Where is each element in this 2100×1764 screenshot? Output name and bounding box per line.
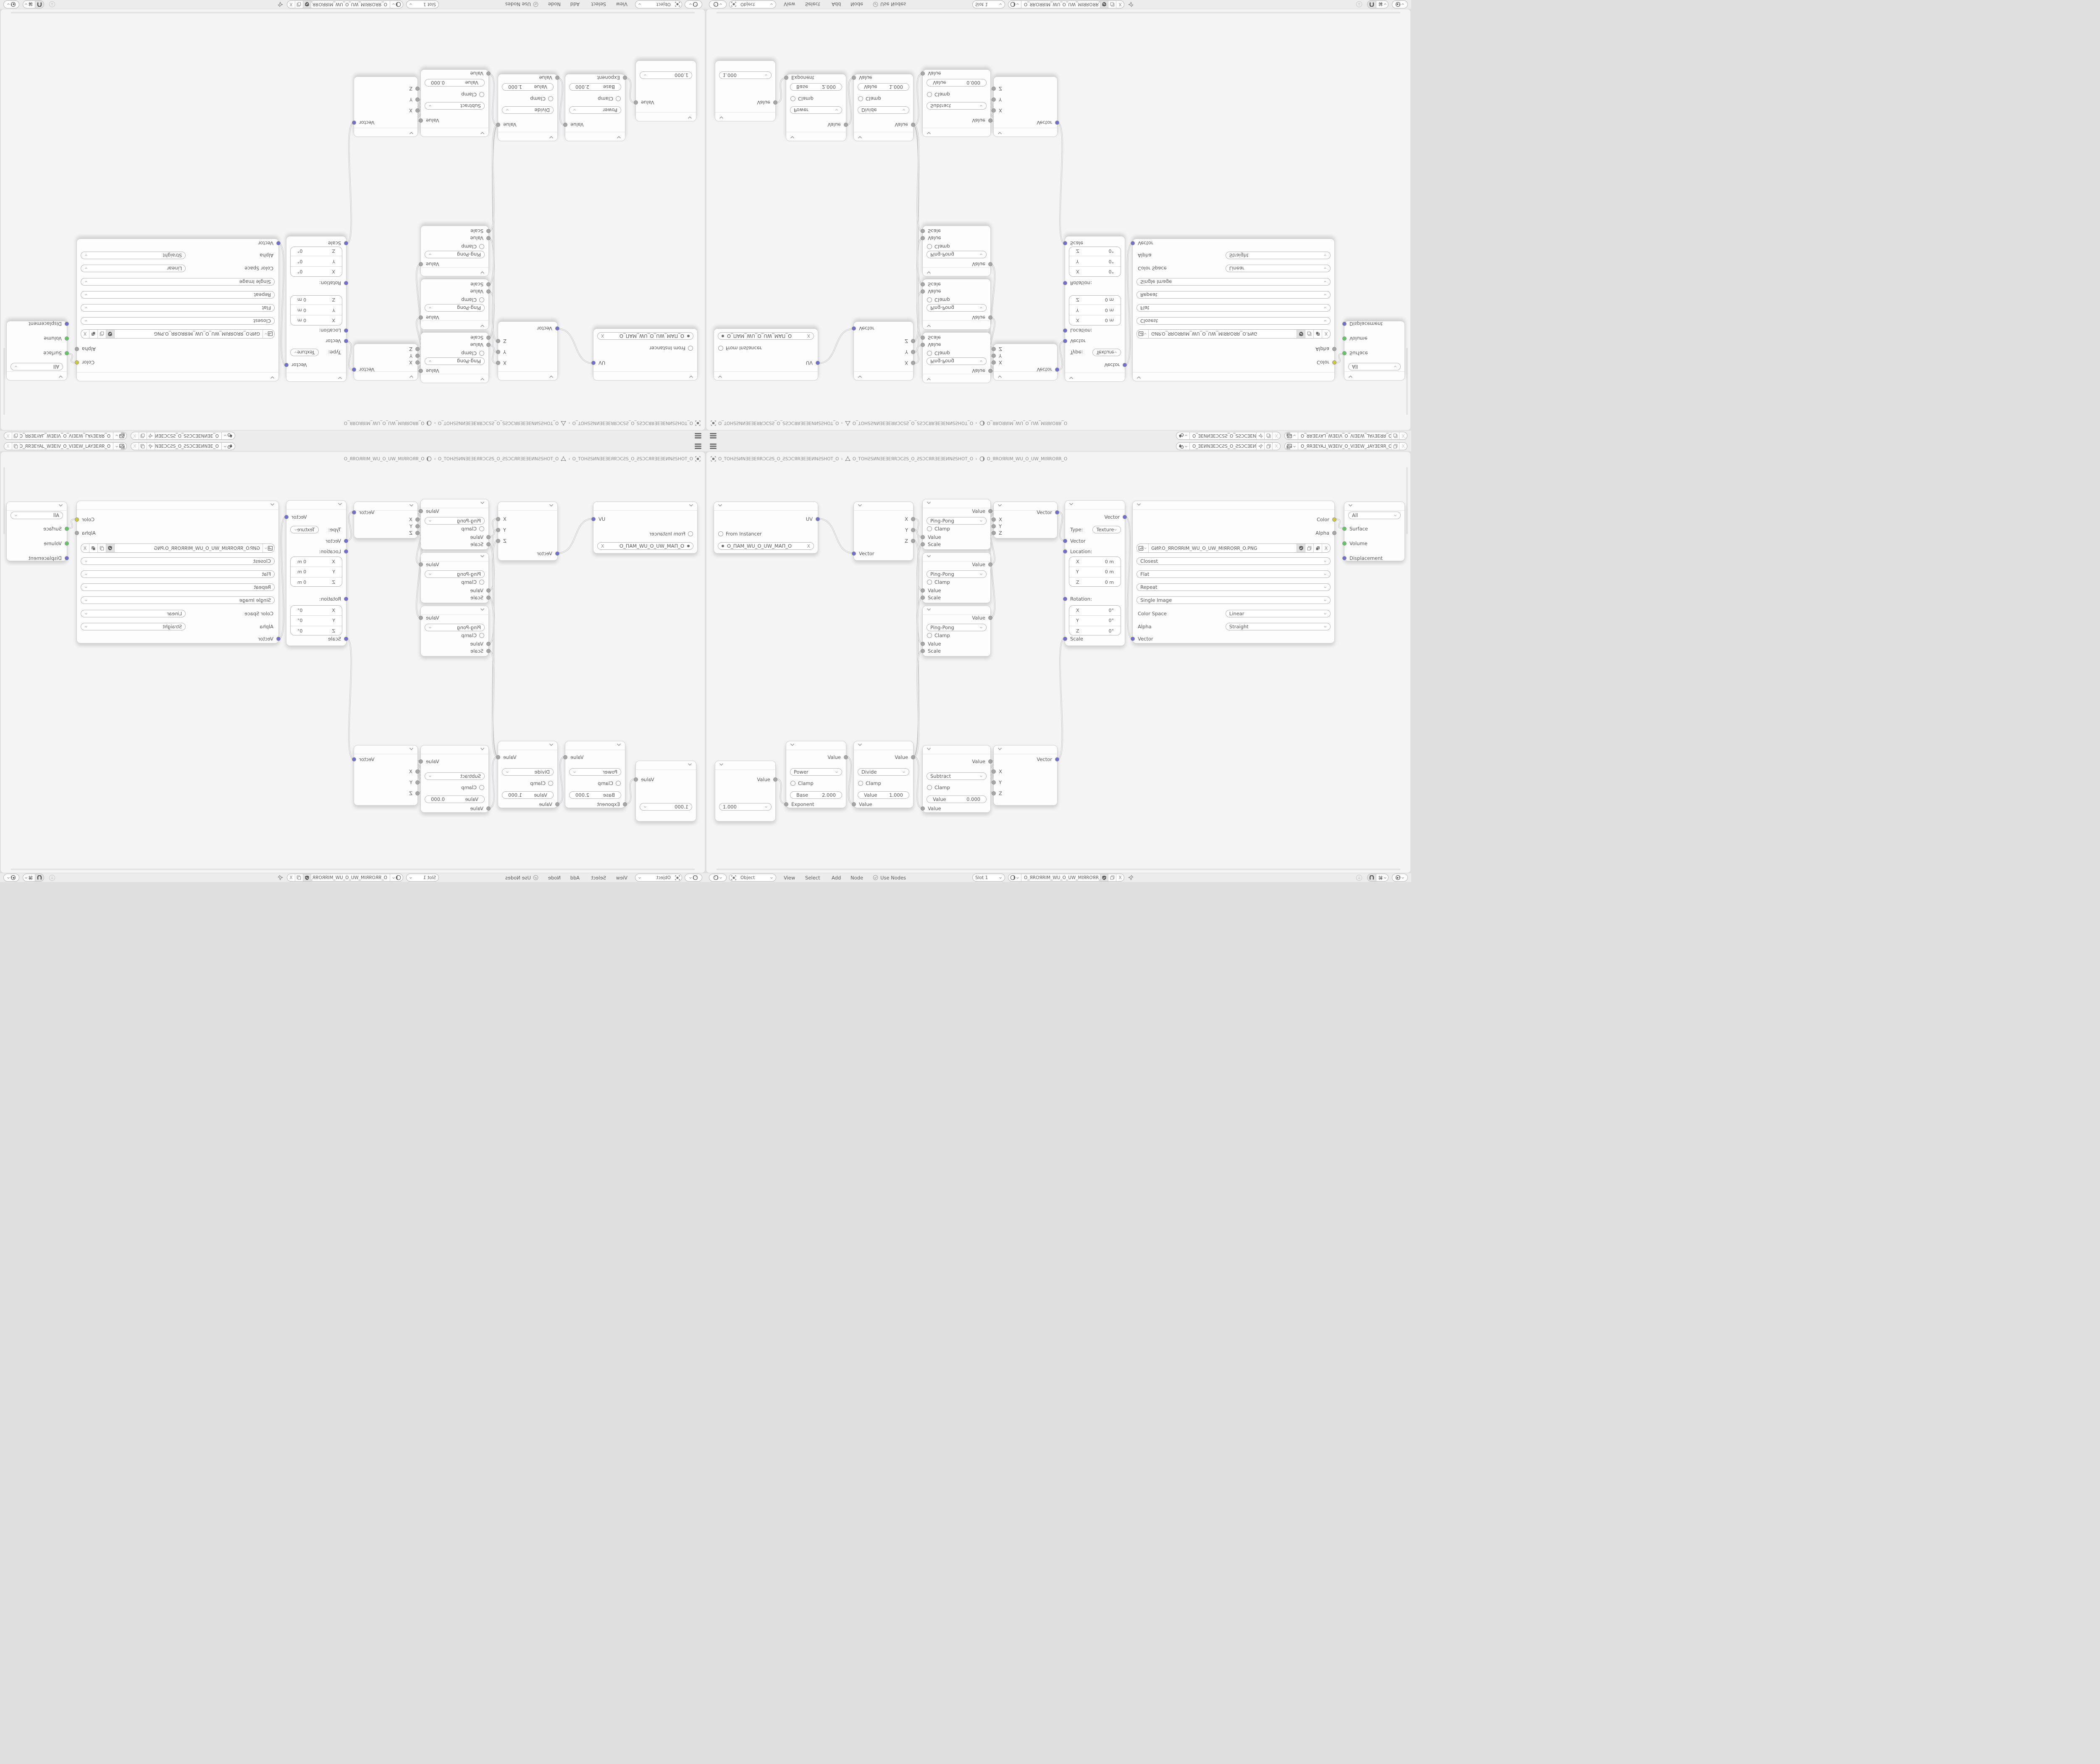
- math-pingpong-node-3[interactable]: Value Ping-PongClamp Value Scale: [420, 226, 489, 276]
- node-header[interactable]: [923, 745, 990, 754]
- menu-node[interactable]: Node: [548, 0, 561, 9]
- axis-value-field[interactable]: Y0°: [291, 256, 342, 266]
- collapse-chevron-icon[interactable]: [549, 136, 554, 139]
- dropdown[interactable]: Ping-Pong: [927, 251, 987, 258]
- image-datablock-selector[interactable]: GИP.O_ЯROЯRIM_WU_O_UW_MIЯROЯR_O.PNG X: [81, 543, 275, 553]
- snapping-controls[interactable]: [23, 0, 44, 8]
- input-socket-x[interactable]: [415, 769, 420, 774]
- output-socket-uv[interactable]: [816, 361, 820, 365]
- pin-icon[interactable]: [278, 873, 283, 882]
- menu-add[interactable]: Add: [570, 0, 580, 9]
- menu-view[interactable]: View: [616, 873, 627, 882]
- dropdown[interactable]: Ping-Pong: [927, 304, 987, 312]
- mapping-node[interactable]: Vector Type: Texture Vector Location: X0…: [1065, 236, 1125, 382]
- node-header[interactable]: [1133, 501, 1334, 510]
- input-socket-x[interactable]: [992, 517, 996, 522]
- menu-hamburger-icon[interactable]: [710, 433, 717, 438]
- input-socket-scale[interactable]: [344, 241, 348, 245]
- output-socket-value[interactable]: [988, 509, 992, 513]
- shader-type-dropdown[interactable]: Object: [729, 0, 776, 8]
- math-pingpong-node-2[interactable]: Value Ping-PongClamp Value Scale: [922, 279, 991, 330]
- input-socket-value[interactable]: [486, 535, 491, 539]
- axis-value-field[interactable]: Z0 m: [1069, 577, 1121, 587]
- output-socket-x[interactable]: [496, 517, 500, 521]
- view-layer-selector[interactable]: O_ЯRƎEYA⅃_WƎEIV_O_VIƎEW_⅃AYƎEЯR_O X: [1284, 432, 1407, 440]
- math-pingpong-node-3[interactable]: Value Ping-PongClamp Value Scale: [420, 606, 489, 656]
- collapse-chevron-icon[interactable]: [997, 504, 1002, 507]
- proportional-edit-dropdown[interactable]: [3, 874, 19, 882]
- output-socket-y[interactable]: [911, 528, 915, 532]
- input-socket-z[interactable]: [992, 347, 996, 351]
- input-socket-value[interactable]: [486, 806, 491, 811]
- output-socket-value[interactable]: [988, 262, 992, 266]
- new-copy-icon[interactable]: [1391, 432, 1399, 439]
- math-pingpong-node-1[interactable]: Value Ping-PongClamp Value Scale: [420, 332, 489, 383]
- node-header[interactable]: [286, 373, 346, 381]
- snapping-controls[interactable]: [1367, 0, 1389, 8]
- output-socket-x[interactable]: [911, 517, 915, 521]
- output-socket-vector[interactable]: [284, 363, 289, 367]
- snapping-controls[interactable]: [1367, 874, 1389, 882]
- math-subtract-node[interactable]: Value SubtractClampValue0.000 Value: [420, 745, 489, 813]
- material-selector[interactable]: O_ЯROЯRIM_WU_O_UW_MIЯROЯR_O X: [287, 0, 403, 8]
- menu-select[interactable]: Select: [805, 0, 820, 9]
- input-socket-value[interactable]: [921, 806, 925, 811]
- node-header[interactable]: [786, 132, 846, 141]
- collapse-chevron-icon[interactable]: [927, 747, 931, 751]
- input-socket-value[interactable]: [921, 343, 925, 347]
- output-socket-vector[interactable]: [1055, 121, 1059, 125]
- new-copy-icon[interactable]: [1264, 432, 1272, 439]
- dropdown[interactable]: Single Image: [81, 278, 275, 286]
- collapse-chevron-icon[interactable]: [719, 116, 724, 119]
- dropdown[interactable]: Flat: [1137, 304, 1331, 312]
- new-copy-icon[interactable]: [1264, 443, 1272, 450]
- menu-hamburger-icon[interactable]: [695, 433, 701, 438]
- menu-view[interactable]: View: [784, 0, 795, 9]
- dropdown[interactable]: Subtract: [927, 772, 987, 780]
- scene-selector[interactable]: O_ƎEИNƎEƆCƧS_O_ƧSƆCƎEИNƎE_O X: [131, 432, 235, 440]
- value-field[interactable]: Base2.000: [790, 791, 842, 799]
- value-field[interactable]: Value1.000: [858, 791, 909, 799]
- new-copy-icon[interactable]: [12, 432, 20, 439]
- separate-xyz-node[interactable]: X Y Z Vector: [853, 321, 913, 381]
- combine-xyz-node-bottom[interactable]: Vector X Y Z: [354, 76, 418, 137]
- axis-value-field[interactable]: X0 m: [291, 557, 342, 567]
- output-socket-value[interactable]: [988, 315, 992, 320]
- axis-value-field[interactable]: X0°: [291, 606, 342, 615]
- output-socket-z[interactable]: [911, 339, 915, 343]
- input-socket-displacement[interactable]: [65, 556, 69, 560]
- combine-xyz-node-top[interactable]: Vector X Y Z: [354, 344, 418, 381]
- checkbox[interactable]: Clamp: [927, 350, 950, 356]
- axis-value-field[interactable]: Y0 m: [1069, 567, 1121, 577]
- input-socket-scale[interactable]: [921, 336, 925, 340]
- input-socket-y[interactable]: [415, 354, 420, 358]
- node-header[interactable]: [714, 371, 818, 380]
- axis-value-field[interactable]: Y0°: [1069, 615, 1121, 625]
- collapse-chevron-icon[interactable]: [997, 747, 1002, 751]
- fake-user-shield-icon[interactable]: [303, 1, 311, 8]
- separate-xyz-node[interactable]: X Y Z Vector: [853, 501, 913, 561]
- checkbox[interactable]: Clamp: [858, 780, 881, 786]
- dropdown[interactable]: Closest: [81, 557, 275, 565]
- input-socket-z[interactable]: [992, 791, 996, 795]
- separate-xyz-node[interactable]: X Y Z Vector: [498, 321, 558, 381]
- copy-icon[interactable]: [1108, 874, 1116, 881]
- checkbox[interactable]: From Instancer: [649, 531, 693, 537]
- checkbox[interactable]: Clamp: [927, 633, 950, 638]
- input-socket-location[interactable]: [344, 328, 348, 333]
- node-header[interactable]: [854, 741, 913, 750]
- value-node[interactable]: Value 1.000: [635, 761, 696, 822]
- output-socket-uv[interactable]: [591, 361, 596, 365]
- input-socket-scale[interactable]: [1063, 241, 1067, 245]
- input-socket-surface[interactable]: [65, 351, 69, 355]
- node-header[interactable]: [7, 371, 67, 380]
- input-socket-scale[interactable]: [921, 596, 925, 600]
- fake-user-shield-icon[interactable]: [106, 544, 115, 552]
- axis-value-field[interactable]: Y0 m: [1069, 305, 1121, 315]
- input-socket-y[interactable]: [415, 97, 420, 102]
- xyz-value-box[interactable]: X0 mY0 mZ0 m: [1069, 295, 1121, 325]
- input-socket-vector[interactable]: [852, 551, 856, 556]
- unlink-x-icon[interactable]: X: [131, 443, 139, 450]
- output-socket-vector[interactable]: [352, 367, 356, 372]
- node-header[interactable]: [1065, 373, 1125, 381]
- pack-icon[interactable]: [1313, 330, 1322, 338]
- math-power-node[interactable]: Value PowerClampBase2.000 Exponent: [565, 74, 625, 141]
- output-socket-value[interactable]: [419, 118, 423, 123]
- math-divide-node[interactable]: Value DivideClampValue1.000 Value: [498, 741, 558, 808]
- output-socket-value[interactable]: [419, 616, 423, 620]
- material-output-node[interactable]: All Surface Volume Displacement: [6, 321, 67, 381]
- node-header[interactable]: [593, 371, 697, 380]
- separate-xyz-node[interactable]: X Y Z Vector: [498, 501, 558, 561]
- slot-dropdown[interactable]: Slot 1: [972, 874, 1005, 882]
- output-socket-value[interactable]: [563, 755, 567, 759]
- output-socket-value[interactable]: [911, 123, 915, 127]
- uv-map-node[interactable]: UV From InstancerO_ПAM_WU_O_UW_MAП_OX: [593, 501, 698, 554]
- checkbox[interactable]: From Instancer: [649, 345, 693, 351]
- xyz-value-box[interactable]: X0°Y0°Z0°: [1069, 605, 1121, 635]
- collapse-chevron-icon[interactable]: [927, 378, 931, 381]
- input-socket-scale[interactable]: [921, 229, 925, 233]
- input-socket-z[interactable]: [992, 87, 996, 91]
- pin-icon[interactable]: [1256, 443, 1264, 450]
- auto-offset-icon[interactable]: [49, 873, 55, 882]
- value-field[interactable]: Value1.000: [502, 791, 554, 799]
- axis-value-field[interactable]: X0 m: [1069, 315, 1121, 325]
- axis-value-field[interactable]: Y0°: [1069, 256, 1121, 266]
- scene-selector[interactable]: O_ƎEИNƎEƆCƧS_O_ƧSƆCƎEИNƎE_O X: [1176, 442, 1281, 450]
- math-subtract-node[interactable]: Value SubtractClampValue0.000 Value: [420, 69, 489, 137]
- menu-view[interactable]: View: [616, 0, 627, 9]
- unlink-x-icon[interactable]: X: [1322, 544, 1330, 552]
- dropdown[interactable]: Power: [569, 106, 621, 114]
- collapse-chevron-icon[interactable]: [1348, 504, 1353, 507]
- slot-dropdown[interactable]: Slot 1: [406, 0, 439, 8]
- output-socket-uv[interactable]: [591, 517, 596, 521]
- value-field[interactable]: Value1.000: [502, 83, 554, 91]
- menu-view[interactable]: View: [784, 873, 795, 882]
- output-socket-value[interactable]: [419, 509, 423, 513]
- unlink-x-icon[interactable]: X: [1322, 330, 1330, 338]
- copy-icon[interactable]: [295, 874, 303, 881]
- output-socket-z[interactable]: [496, 539, 500, 543]
- use-nodes-checkbox[interactable]: Use Nodes: [873, 873, 906, 882]
- copy-icon[interactable]: [1305, 330, 1313, 338]
- collapse-chevron-icon[interactable]: [927, 501, 931, 504]
- input-socket-volume[interactable]: [1342, 541, 1347, 546]
- view-layer-selector[interactable]: O_ЯRƎEYA⅃_WƎEIV_O_VIƎEW_⅃AYƎEЯR_O X: [4, 432, 127, 440]
- input-socket-scale[interactable]: [486, 336, 491, 340]
- dropdown[interactable]: Straight: [81, 252, 186, 259]
- axis-value-field[interactable]: X0 m: [291, 315, 342, 325]
- output-socket-alpha[interactable]: [75, 347, 79, 351]
- collapse-chevron-icon[interactable]: [1069, 502, 1074, 506]
- checkbox[interactable]: Clamp: [927, 244, 950, 249]
- node-header[interactable]: [593, 502, 697, 511]
- output-socket-alpha[interactable]: [1332, 531, 1336, 535]
- collapse-chevron-icon[interactable]: [927, 271, 931, 274]
- dropdown[interactable]: Repeat: [81, 291, 275, 299]
- output-socket-value[interactable]: [563, 123, 567, 127]
- copy-icon[interactable]: [1108, 1, 1116, 8]
- input-socket-rotation[interactable]: [344, 597, 348, 601]
- input-socket-vector[interactable]: [276, 241, 281, 245]
- view-layer-name[interactable]: O_ЯRƎEYA⅃_WƎEIV_O_VIƎEW_⅃AYƎEЯR_O: [1298, 444, 1391, 449]
- combine-xyz-node-top[interactable]: Vector X Y Z: [993, 501, 1058, 538]
- output-socket-value[interactable]: [634, 777, 638, 782]
- menu-hamburger-icon[interactable]: [710, 444, 717, 449]
- value-field[interactable]: Value0.000: [425, 795, 485, 803]
- dropdown[interactable]: Linear: [1226, 265, 1331, 272]
- axis-value-field[interactable]: Y0°: [291, 615, 342, 625]
- remove-x-icon[interactable]: X: [4, 432, 12, 439]
- input-socket-y[interactable]: [992, 354, 996, 358]
- input-socket-location[interactable]: [1063, 328, 1067, 333]
- input-socket-vector[interactable]: [555, 326, 559, 331]
- axis-value-field[interactable]: Z0°: [291, 626, 342, 635]
- node-header[interactable]: [498, 371, 557, 380]
- collapse-chevron-icon[interactable]: [270, 376, 275, 379]
- xyz-value-box[interactable]: X0 mY0 mZ0 m: [290, 556, 342, 587]
- node-header[interactable]: [498, 132, 557, 141]
- input-socket-value[interactable]: [921, 289, 925, 294]
- collapse-chevron-icon[interactable]: [688, 763, 692, 766]
- node-header[interactable]: [636, 761, 696, 770]
- axis-value-field[interactable]: Y0 m: [291, 305, 342, 315]
- unlink-x-icon[interactable]: X: [131, 432, 139, 439]
- input-socket-displacement[interactable]: [65, 322, 69, 326]
- unlink-x-icon[interactable]: X: [81, 544, 89, 552]
- combine-xyz-node-bottom[interactable]: Vector X Y Z: [993, 745, 1058, 806]
- checkbox[interactable]: Clamp: [790, 96, 814, 102]
- checkbox[interactable]: Clamp: [461, 244, 484, 249]
- node-header[interactable]: [1133, 372, 1334, 381]
- input-socket-scale[interactable]: [921, 649, 925, 653]
- value-field[interactable]: Value0.000: [927, 795, 987, 803]
- uv-map-node[interactable]: UV From InstancerO_ПAM_WU_O_UW_MAП_OX: [593, 328, 698, 381]
- fake-user-shield-icon[interactable]: [303, 874, 311, 881]
- input-socket-surface[interactable]: [1342, 527, 1347, 531]
- dropdown[interactable]: Texture: [1092, 349, 1121, 356]
- uv-map-selector[interactable]: O_ПAM_WU_O_UW_MAП_OX: [718, 542, 814, 550]
- node-header[interactable]: [498, 741, 557, 750]
- dropdown[interactable]: Power: [790, 768, 842, 776]
- node-header[interactable]: [923, 320, 990, 329]
- dropdown[interactable]: All: [1348, 512, 1401, 519]
- input-socket-y[interactable]: [992, 97, 996, 102]
- input-socket-z[interactable]: [415, 347, 420, 351]
- collapse-chevron-icon[interactable]: [617, 743, 621, 746]
- collapse-chevron-icon[interactable]: [1069, 376, 1074, 380]
- shader-type-dropdown[interactable]: Object: [635, 0, 682, 8]
- dropdown[interactable]: Subtract: [425, 102, 485, 110]
- math-divide-node[interactable]: Value DivideClampValue1.000 Value: [853, 74, 913, 141]
- output-socket-vector[interactable]: [1055, 510, 1059, 514]
- view-layer-name[interactable]: O_ЯRƎEYA⅃_WƎEIV_O_VIƎEW_⅃AYƎEЯR_O: [20, 444, 113, 449]
- output-socket-y[interactable]: [496, 350, 500, 354]
- scene-selector[interactable]: O_ƎEИNƎEƆCƧS_O_ƧSƆCƎEИNƎE_O X: [131, 442, 235, 450]
- output-socket-value[interactable]: [496, 123, 500, 127]
- pack-icon[interactable]: [1313, 544, 1322, 552]
- collapse-chevron-icon[interactable]: [409, 504, 414, 507]
- output-socket-value[interactable]: [988, 616, 992, 620]
- dropdown[interactable]: Closest: [1137, 317, 1331, 325]
- input-socket-rotation[interactable]: [344, 281, 348, 285]
- value-field[interactable]: Base2.000: [569, 791, 621, 799]
- input-socket-exponent[interactable]: [623, 76, 627, 80]
- output-socket-value[interactable]: [773, 100, 777, 105]
- input-socket-value[interactable]: [921, 236, 925, 240]
- material-selector[interactable]: O_ЯROЯRIM_WU_O_UW_MIЯROЯR_O X: [287, 874, 403, 882]
- dropdown[interactable]: Divide: [858, 106, 909, 114]
- dropdown[interactable]: Straight: [81, 623, 186, 630]
- collapse-chevron-icon[interactable]: [719, 763, 724, 766]
- value-field[interactable]: Value0.000: [927, 79, 987, 87]
- dropdown[interactable]: Ping-Pong: [425, 251, 485, 258]
- uv-map-selector[interactable]: O_ПAM_WU_O_UW_MAП_OX: [597, 542, 693, 550]
- dropdown[interactable]: Flat: [81, 304, 275, 312]
- output-socket-color[interactable]: [1332, 360, 1336, 365]
- dropdown[interactable]: Subtract: [425, 772, 485, 780]
- mapping-node[interactable]: Vector Type: Texture Vector Location: X0…: [1065, 500, 1125, 646]
- input-socket-value[interactable]: [921, 535, 925, 539]
- dropdown[interactable]: Linear: [81, 265, 186, 272]
- output-socket-uv[interactable]: [816, 517, 820, 521]
- combine-xyz-node-bottom[interactable]: Vector X Y Z: [993, 76, 1058, 137]
- fake-user-shield-icon[interactable]: [1297, 330, 1305, 338]
- xyz-value-box[interactable]: X0 mY0 mZ0 m: [290, 295, 342, 325]
- collapse-chevron-icon[interactable]: [480, 747, 485, 751]
- collapse-chevron-icon[interactable]: [480, 131, 485, 135]
- math-subtract-node[interactable]: Value SubtractClampValue0.000 Value: [922, 745, 991, 813]
- collapse-chevron-icon[interactable]: [790, 136, 795, 139]
- copy-icon[interactable]: [98, 330, 106, 338]
- output-socket-value[interactable]: [773, 777, 777, 782]
- axis-value-field[interactable]: X0°: [291, 267, 342, 276]
- dropdown[interactable]: Power: [569, 768, 621, 776]
- collapse-chevron-icon[interactable]: [927, 131, 931, 135]
- collapse-chevron-icon[interactable]: [480, 324, 485, 328]
- dropdown[interactable]: Divide: [502, 106, 554, 114]
- output-socket-value[interactable]: [988, 118, 992, 123]
- node-header[interactable]: [77, 372, 278, 381]
- pin-icon[interactable]: [1128, 873, 1134, 882]
- input-socket-exponent[interactable]: [623, 802, 627, 806]
- node-header[interactable]: [923, 128, 990, 136]
- collapse-chevron-icon[interactable]: [790, 743, 795, 746]
- value-node[interactable]: Value 1.000: [715, 60, 776, 121]
- value-node[interactable]: Value 1.000: [635, 60, 696, 121]
- uv-map-selector[interactable]: O_ПAM_WU_O_UW_MAП_OX: [597, 332, 693, 340]
- axis-value-field[interactable]: Z0°: [1069, 626, 1121, 635]
- input-socket-x[interactable]: [415, 108, 420, 113]
- pin-icon[interactable]: [1256, 432, 1264, 439]
- input-socket-vector[interactable]: [1063, 339, 1067, 343]
- math-pingpong-node-3[interactable]: Value Ping-PongClamp Value Scale: [922, 606, 991, 656]
- dropdown[interactable]: Ping-Pong: [425, 624, 485, 631]
- menu-node[interactable]: Node: [548, 873, 561, 882]
- collapse-chevron-icon[interactable]: [549, 504, 554, 507]
- dropdown[interactable]: Ping-Pong: [425, 304, 485, 312]
- node-header[interactable]: [421, 267, 488, 276]
- input-socket-value[interactable]: [921, 71, 925, 76]
- collapse-chevron-icon[interactable]: [689, 504, 693, 507]
- output-socket-vector[interactable]: [352, 121, 356, 125]
- input-socket-value[interactable]: [921, 588, 925, 593]
- input-socket-value[interactable]: [555, 802, 559, 806]
- output-socket-alpha[interactable]: [1332, 347, 1336, 351]
- input-socket-z[interactable]: [415, 531, 420, 535]
- dropdown[interactable]: Straight: [1226, 623, 1331, 630]
- collapse-chevron-icon[interactable]: [480, 608, 485, 611]
- output-socket-value[interactable]: [419, 262, 423, 266]
- dropdown[interactable]: Ping-Pong: [927, 357, 987, 365]
- material-name[interactable]: O_ЯROЯRIM_WU_O_UW_MIЯROЯR_O: [1021, 2, 1100, 7]
- node-header[interactable]: [7, 502, 67, 511]
- output-socket-y[interactable]: [911, 350, 915, 354]
- output-socket-z[interactable]: [911, 539, 915, 543]
- math-pingpong-node-3[interactable]: Value Ping-PongClamp Value Scale: [922, 226, 991, 276]
- checkbox[interactable]: From Instancer: [718, 345, 762, 351]
- pin-icon[interactable]: [1128, 0, 1134, 9]
- collapse-chevron-icon[interactable]: [409, 747, 414, 751]
- scene-name[interactable]: O_ƎEИNƎEƆCƧS_O_ƧSƆCƎEИNƎE_O: [1190, 444, 1256, 449]
- combine-xyz-node-bottom[interactable]: Vector X Y Z: [354, 745, 418, 806]
- collapse-chevron-icon[interactable]: [858, 375, 862, 378]
- node-header[interactable]: [923, 267, 990, 276]
- math-subtract-node[interactable]: Value SubtractClampValue0.000 Value: [922, 69, 991, 137]
- node-header[interactable]: [1344, 371, 1404, 380]
- material-name[interactable]: O_ЯROЯRIM_WU_O_UW_MIЯROЯR_O: [1021, 875, 1100, 880]
- axis-value-field[interactable]: Z0°: [291, 247, 342, 256]
- node-header[interactable]: [854, 371, 913, 380]
- collapse-chevron-icon[interactable]: [1137, 376, 1141, 379]
- checkbox[interactable]: Clamp: [461, 579, 484, 585]
- math-power-node[interactable]: Value PowerClampBase2.000 Exponent: [786, 741, 846, 808]
- slot-dropdown[interactable]: Slot 1: [972, 0, 1005, 8]
- dropdown[interactable]: Linear: [1226, 610, 1331, 617]
- xyz-value-box[interactable]: X0 mY0 mZ0 m: [1069, 556, 1121, 587]
- dropdown[interactable]: Single Image: [1137, 596, 1331, 604]
- value-field[interactable]: Value0.000: [425, 79, 485, 87]
- image-texture-node[interactable]: Color Alpha GИP.O_ЯROЯRIM_WU_O_UW_MIЯROЯ…: [1132, 501, 1335, 643]
- unlink-x-icon[interactable]: X: [287, 1, 295, 8]
- menu-select[interactable]: Select: [591, 873, 606, 882]
